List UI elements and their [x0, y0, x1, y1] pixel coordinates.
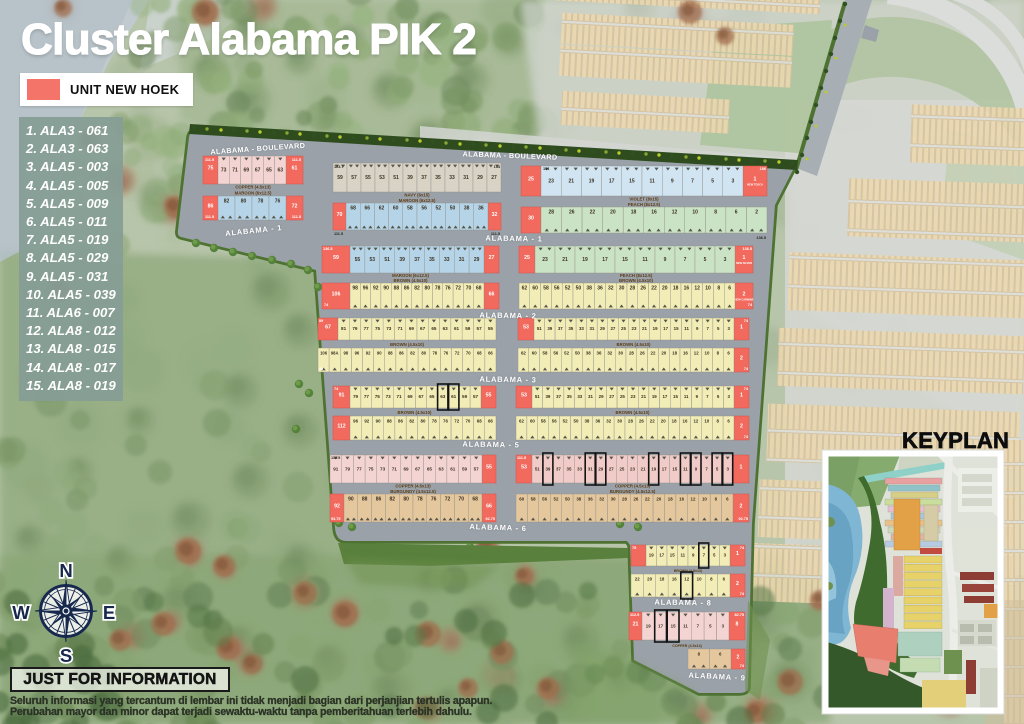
svg-text:9: 9 — [664, 257, 667, 263]
svg-text:11: 11 — [649, 179, 655, 185]
svg-text:35: 35 — [567, 394, 572, 399]
svg-text:2: 2 — [736, 581, 739, 587]
svg-text:11: 11 — [684, 394, 689, 399]
svg-text:59: 59 — [333, 255, 339, 261]
svg-text:55: 55 — [365, 175, 371, 181]
svg-text:21: 21 — [562, 257, 568, 263]
svg-text:96: 96 — [355, 351, 360, 356]
svg-text:88: 88 — [362, 497, 368, 503]
svg-text:18: 18 — [659, 577, 664, 582]
svg-text:73: 73 — [221, 167, 227, 173]
svg-text:1: 1 — [740, 325, 743, 331]
svg-text:53: 53 — [370, 257, 376, 263]
svg-text:11: 11 — [680, 553, 685, 558]
svg-text:28: 28 — [629, 351, 634, 356]
svg-text:31: 31 — [459, 257, 465, 263]
svg-text:26: 26 — [569, 210, 575, 216]
svg-text:25: 25 — [621, 326, 626, 331]
svg-text:6: 6 — [728, 286, 731, 292]
svg-text:58: 58 — [541, 419, 546, 424]
svg-text:2: 2 — [737, 655, 740, 661]
svg-text:18: 18 — [672, 351, 677, 356]
svg-text:52: 52 — [563, 419, 568, 424]
svg-text:82: 82 — [410, 351, 415, 356]
svg-text:37: 37 — [556, 466, 561, 471]
svg-text:COPPER (4.5x13): COPPER (4.5x13) — [395, 483, 431, 488]
svg-text:92: 92 — [364, 419, 369, 424]
svg-text:62: 62 — [519, 419, 524, 424]
svg-text:88: 88 — [387, 419, 392, 424]
svg-text:1: 1 — [740, 393, 743, 399]
svg-text:51: 51 — [537, 326, 542, 331]
svg-text:57: 57 — [351, 175, 357, 181]
svg-text:90: 90 — [377, 351, 382, 356]
svg-text:78: 78 — [258, 199, 264, 205]
svg-text:35: 35 — [567, 466, 572, 471]
svg-text:50: 50 — [574, 419, 579, 424]
svg-text:56: 56 — [542, 497, 547, 502]
svg-text:38: 38 — [586, 286, 592, 292]
svg-text:37: 37 — [556, 394, 561, 399]
svg-text:53: 53 — [379, 175, 385, 181]
svg-text:28: 28 — [549, 210, 555, 216]
svg-text:63: 63 — [443, 326, 449, 331]
svg-text:58: 58 — [531, 497, 536, 502]
svg-text:16: 16 — [683, 351, 688, 356]
svg-text:69: 69 — [403, 466, 409, 471]
svg-text:28: 28 — [630, 286, 636, 292]
svg-text:70: 70 — [465, 419, 470, 424]
svg-text:66: 66 — [486, 503, 492, 509]
svg-text:60: 60 — [519, 497, 524, 502]
svg-text:21: 21 — [569, 179, 575, 185]
svg-text:68: 68 — [472, 497, 478, 503]
svg-text:77: 77 — [357, 466, 363, 471]
svg-text:21: 21 — [641, 466, 646, 471]
svg-text:58: 58 — [407, 206, 413, 212]
svg-text:111.5: 111.5 — [334, 232, 343, 236]
svg-text:BROWN (4.5x10): BROWN (4.5x10) — [617, 342, 651, 347]
svg-text:19: 19 — [653, 326, 658, 331]
svg-text:60: 60 — [532, 351, 537, 356]
svg-text:18: 18 — [631, 210, 637, 216]
svg-text:30: 30 — [528, 216, 534, 222]
svg-text:72: 72 — [454, 419, 459, 424]
svg-text:10: 10 — [702, 497, 707, 502]
svg-text:COPPER (4.5x13): COPPER (4.5x13) — [235, 185, 271, 190]
svg-text:22: 22 — [651, 286, 657, 292]
svg-text:76: 76 — [275, 199, 281, 205]
svg-text:ALABAMA - 2: ALABAMA - 2 — [479, 311, 536, 321]
svg-text:73: 73 — [386, 394, 392, 399]
svg-text:27: 27 — [609, 394, 614, 399]
svg-text:71: 71 — [232, 167, 238, 173]
svg-text:58: 58 — [543, 351, 548, 356]
svg-text:61: 61 — [454, 326, 460, 331]
svg-text:186: 186 — [760, 167, 766, 171]
svg-text:32: 32 — [607, 351, 612, 356]
svg-text:32: 32 — [606, 419, 611, 424]
svg-text:51: 51 — [384, 257, 390, 263]
svg-text:92: 92 — [366, 351, 371, 356]
svg-text:31: 31 — [588, 394, 593, 399]
svg-text:78: 78 — [432, 351, 437, 356]
svg-text:1: 1 — [743, 255, 746, 261]
svg-text:81: 81 — [341, 326, 347, 331]
svg-text:16: 16 — [679, 497, 684, 502]
svg-text:10: 10 — [704, 419, 709, 424]
svg-text:32: 32 — [608, 286, 614, 292]
svg-text:71: 71 — [397, 394, 403, 399]
svg-text:91: 91 — [339, 393, 345, 399]
svg-text:55: 55 — [486, 464, 492, 470]
svg-text:17: 17 — [662, 394, 667, 399]
svg-text:37: 37 — [414, 257, 420, 263]
svg-text:70: 70 — [466, 286, 472, 292]
svg-text:89: 89 — [319, 319, 323, 323]
svg-text:16: 16 — [683, 419, 688, 424]
svg-text:72: 72 — [455, 286, 461, 292]
svg-text:90: 90 — [383, 286, 389, 292]
svg-text:10: 10 — [697, 577, 702, 582]
svg-text:73: 73 — [386, 326, 392, 331]
svg-text:26: 26 — [633, 497, 638, 502]
svg-text:21: 21 — [641, 394, 646, 399]
svg-text:38: 38 — [586, 351, 591, 356]
svg-text:75: 75 — [368, 466, 374, 471]
svg-text:67: 67 — [255, 167, 261, 173]
svg-text:136.5: 136.5 — [756, 236, 766, 240]
svg-text:68: 68 — [477, 351, 482, 356]
svg-text:73: 73 — [380, 466, 386, 471]
svg-text:1: 1 — [740, 464, 743, 470]
svg-text:68: 68 — [350, 206, 356, 212]
svg-text:50: 50 — [565, 497, 570, 502]
svg-text:62: 62 — [379, 206, 385, 212]
svg-text:112: 112 — [337, 424, 345, 430]
svg-text:MAROON (6x12.5): MAROON (6x12.5) — [399, 198, 436, 203]
svg-text:90: 90 — [348, 497, 354, 503]
svg-text:19: 19 — [589, 179, 595, 185]
svg-text:NEW CARMINE: NEW CARMINE — [735, 298, 754, 302]
svg-text:NEW TOSCA: NEW TOSCA — [747, 182, 763, 186]
svg-text:BROWN (4.5x10): BROWN (4.5x10) — [394, 278, 428, 283]
svg-text:27: 27 — [489, 255, 495, 261]
svg-text:BROWN (4.5x10): BROWN (4.5x10) — [398, 410, 432, 415]
svg-text:75: 75 — [375, 326, 381, 331]
svg-text:NAVY (6x15): NAVY (6x15) — [404, 192, 430, 197]
svg-text:17: 17 — [658, 623, 663, 628]
svg-text:68: 68 — [477, 419, 482, 424]
svg-text:7: 7 — [684, 257, 687, 263]
svg-text:79: 79 — [353, 394, 359, 399]
svg-text:VIOLET (8x15): VIOLET (8x15) — [629, 196, 659, 201]
svg-text:27: 27 — [491, 175, 497, 181]
svg-text:57: 57 — [477, 326, 483, 331]
svg-text:57: 57 — [473, 394, 479, 399]
svg-text:80: 80 — [421, 351, 426, 356]
svg-text:56: 56 — [421, 206, 427, 212]
svg-text:BROWN (4.5x10): BROWN (4.5x10) — [390, 342, 424, 347]
svg-text:22: 22 — [650, 419, 655, 424]
svg-text:88: 88 — [394, 286, 400, 292]
svg-text:2: 2 — [743, 292, 746, 298]
svg-text:36: 36 — [597, 351, 602, 356]
svg-text:15: 15 — [673, 394, 678, 399]
svg-text:106: 106 — [320, 351, 328, 356]
svg-text:82: 82 — [390, 497, 396, 503]
svg-text:16: 16 — [672, 577, 677, 582]
svg-text:96: 96 — [363, 286, 369, 292]
svg-text:E: E — [103, 602, 115, 623]
svg-text:33: 33 — [449, 175, 455, 181]
svg-text:76: 76 — [431, 497, 437, 503]
svg-text:30: 30 — [619, 286, 625, 292]
svg-text:67: 67 — [325, 325, 331, 331]
svg-text:60: 60 — [393, 206, 399, 212]
svg-text:111.5: 111.5 — [205, 158, 214, 162]
svg-text:33: 33 — [577, 466, 582, 471]
svg-text:86: 86 — [376, 497, 382, 503]
svg-text:15: 15 — [629, 179, 635, 185]
svg-text:30: 30 — [618, 351, 623, 356]
svg-text:89: 89 — [319, 367, 323, 371]
svg-text:52: 52 — [436, 206, 442, 212]
svg-text:5: 5 — [704, 257, 707, 263]
svg-text:35: 35 — [435, 175, 441, 181]
svg-text:80: 80 — [403, 497, 409, 503]
svg-text:25: 25 — [524, 255, 530, 261]
svg-text:52: 52 — [554, 497, 559, 502]
svg-text:19: 19 — [582, 257, 588, 263]
svg-text:30: 30 — [611, 497, 616, 502]
svg-text:80: 80 — [241, 199, 247, 205]
svg-text:36: 36 — [597, 286, 603, 292]
svg-text:51: 51 — [535, 466, 540, 471]
svg-text:39: 39 — [407, 175, 413, 181]
svg-text:32: 32 — [492, 212, 498, 218]
svg-text:1: 1 — [736, 551, 739, 557]
svg-text:61: 61 — [292, 165, 298, 171]
svg-text:18: 18 — [668, 497, 673, 502]
svg-text:31: 31 — [589, 326, 594, 331]
svg-text:18: 18 — [673, 286, 679, 292]
svg-text:78: 78 — [432, 419, 437, 424]
svg-text:75: 75 — [208, 165, 214, 171]
svg-text:3: 3 — [724, 257, 727, 263]
svg-text:5: 5 — [711, 179, 714, 185]
svg-text:69: 69 — [244, 167, 250, 173]
svg-text:92: 92 — [373, 286, 379, 292]
svg-text:8: 8 — [714, 210, 717, 216]
svg-text:10: 10 — [705, 351, 710, 356]
svg-text:68: 68 — [476, 286, 482, 292]
svg-text:2: 2 — [740, 424, 743, 430]
svg-text:1: 1 — [754, 176, 757, 182]
svg-text:30: 30 — [617, 419, 622, 424]
svg-text:76: 76 — [445, 286, 451, 292]
svg-text:57: 57 — [474, 466, 480, 471]
svg-text:111.5: 111.5 — [292, 158, 301, 162]
svg-text:15: 15 — [670, 553, 675, 558]
svg-text:BROWN (4.5x10): BROWN (4.5x10) — [616, 410, 650, 415]
svg-text:37: 37 — [558, 326, 563, 331]
svg-text:86: 86 — [398, 419, 403, 424]
svg-text:39: 39 — [545, 394, 550, 399]
svg-text:38: 38 — [584, 419, 589, 424]
svg-text:12: 12 — [684, 577, 689, 582]
svg-text:70: 70 — [459, 497, 465, 503]
svg-text:38: 38 — [464, 206, 470, 212]
svg-text:92: 92 — [334, 503, 340, 509]
svg-text:31: 31 — [588, 466, 593, 471]
svg-text:26: 26 — [640, 286, 646, 292]
svg-text:BURGUNDY (4.5x12.5): BURGUNDY (4.5x12.5) — [610, 489, 656, 494]
svg-text:98: 98 — [343, 351, 348, 356]
svg-text:59: 59 — [337, 175, 343, 181]
svg-text:50: 50 — [450, 206, 456, 212]
svg-text:61: 61 — [451, 394, 457, 399]
svg-text:67: 67 — [420, 326, 426, 331]
svg-text:20: 20 — [662, 286, 668, 292]
svg-text:W: W — [12, 602, 30, 623]
svg-text:17: 17 — [609, 179, 615, 185]
svg-text:93.75: 93.75 — [331, 517, 341, 521]
svg-text:65: 65 — [427, 466, 433, 471]
svg-text:66: 66 — [488, 351, 493, 356]
svg-text:72: 72 — [445, 497, 451, 503]
svg-text:17: 17 — [662, 466, 667, 471]
svg-text:NEW SILVER: NEW SILVER — [736, 261, 752, 265]
svg-text:67: 67 — [415, 466, 421, 471]
svg-text:112.5: 112.5 — [331, 456, 340, 460]
svg-text:2: 2 — [740, 503, 743, 509]
svg-text:39: 39 — [545, 466, 550, 471]
svg-text:76: 76 — [443, 419, 448, 424]
svg-text:62: 62 — [522, 286, 528, 292]
svg-text:12: 12 — [672, 210, 678, 216]
svg-text:12: 12 — [694, 351, 699, 356]
svg-text:82.75: 82.75 — [734, 613, 744, 617]
svg-text:63: 63 — [278, 167, 284, 173]
svg-text:111.5: 111.5 — [205, 215, 214, 219]
svg-text:16: 16 — [651, 210, 657, 216]
svg-text:71: 71 — [398, 326, 404, 331]
svg-text:16: 16 — [684, 286, 690, 292]
svg-text:26: 26 — [640, 351, 645, 356]
svg-text:69: 69 — [407, 394, 413, 399]
svg-text:65: 65 — [429, 394, 435, 399]
svg-text:88: 88 — [388, 351, 393, 356]
svg-text:33: 33 — [577, 394, 582, 399]
svg-text:60: 60 — [532, 286, 538, 292]
svg-text:82: 82 — [224, 199, 230, 205]
svg-text:56: 56 — [554, 286, 560, 292]
svg-text:23: 23 — [542, 257, 548, 263]
svg-text:15: 15 — [672, 466, 677, 471]
svg-text:29: 29 — [477, 175, 483, 181]
svg-text:29: 29 — [598, 466, 603, 471]
svg-text:2: 2 — [740, 356, 743, 362]
svg-text:66: 66 — [365, 206, 371, 212]
svg-text:75: 75 — [632, 546, 636, 550]
svg-text:50: 50 — [575, 351, 580, 356]
svg-text:71: 71 — [392, 466, 398, 471]
svg-text:3: 3 — [732, 179, 735, 185]
svg-text:63: 63 — [439, 466, 445, 471]
svg-text:82: 82 — [414, 286, 420, 292]
svg-text:65: 65 — [266, 167, 272, 173]
svg-text:82: 82 — [409, 419, 414, 424]
svg-text:33: 33 — [579, 326, 584, 331]
svg-text:ALABAMA - 1: ALABAMA - 1 — [485, 234, 542, 244]
svg-text:67: 67 — [418, 394, 424, 399]
svg-text:39: 39 — [399, 257, 405, 263]
svg-text:11: 11 — [683, 466, 688, 471]
svg-text:8: 8 — [717, 286, 720, 292]
svg-text:106: 106 — [332, 292, 341, 298]
svg-text:72: 72 — [455, 351, 460, 356]
svg-text:79: 79 — [352, 326, 358, 331]
svg-text:8: 8 — [736, 621, 739, 627]
svg-text:22: 22 — [645, 497, 650, 502]
svg-text:11: 11 — [642, 257, 648, 263]
svg-text:79: 79 — [345, 466, 351, 471]
svg-text:17: 17 — [659, 553, 664, 558]
svg-text:23: 23 — [631, 394, 636, 399]
svg-text:55: 55 — [488, 326, 494, 331]
svg-text:12: 12 — [694, 286, 700, 292]
svg-text:55: 55 — [486, 393, 492, 399]
svg-text:11: 11 — [684, 326, 689, 331]
svg-text:21: 21 — [633, 621, 639, 627]
svg-text:22: 22 — [590, 210, 596, 216]
svg-text:77: 77 — [364, 326, 370, 331]
svg-text:98: 98 — [352, 286, 358, 292]
svg-text:77: 77 — [364, 394, 370, 399]
svg-text:19: 19 — [649, 553, 654, 558]
svg-text:51: 51 — [535, 394, 540, 399]
svg-text:BROWN (4.5x10): BROWN (4.5x10) — [619, 278, 653, 283]
svg-text:COPPER (4.5x13): COPPER (4.5x13) — [615, 483, 651, 488]
svg-text:17: 17 — [602, 257, 608, 263]
svg-text:38: 38 — [576, 497, 581, 502]
svg-text:27: 27 — [609, 466, 614, 471]
svg-text:91: 91 — [333, 466, 339, 471]
svg-text:60: 60 — [530, 419, 535, 424]
svg-text:29: 29 — [474, 257, 480, 263]
svg-text:28: 28 — [628, 419, 633, 424]
svg-text:BURGUNDY (4.5x12.5): BURGUNDY (4.5x12.5) — [390, 489, 436, 494]
svg-text:111.5: 111.5 — [517, 456, 526, 460]
svg-text:80: 80 — [425, 286, 431, 292]
svg-text:ALABAMA - 3: ALABAMA - 3 — [479, 375, 536, 385]
svg-text:25: 25 — [620, 394, 625, 399]
svg-text:19: 19 — [646, 623, 651, 628]
svg-text:53: 53 — [521, 393, 527, 399]
svg-text:10: 10 — [692, 210, 698, 216]
svg-text:20: 20 — [610, 210, 616, 216]
svg-text:56: 56 — [553, 351, 558, 356]
svg-text:29: 29 — [599, 394, 604, 399]
svg-text:59: 59 — [462, 466, 468, 471]
svg-text:37: 37 — [421, 175, 427, 181]
svg-text:33: 33 — [444, 257, 450, 263]
svg-text:123.7: 123.7 — [334, 165, 344, 169]
svg-text:22: 22 — [635, 577, 640, 582]
svg-text:11: 11 — [683, 623, 688, 628]
svg-text:86: 86 — [404, 286, 410, 292]
